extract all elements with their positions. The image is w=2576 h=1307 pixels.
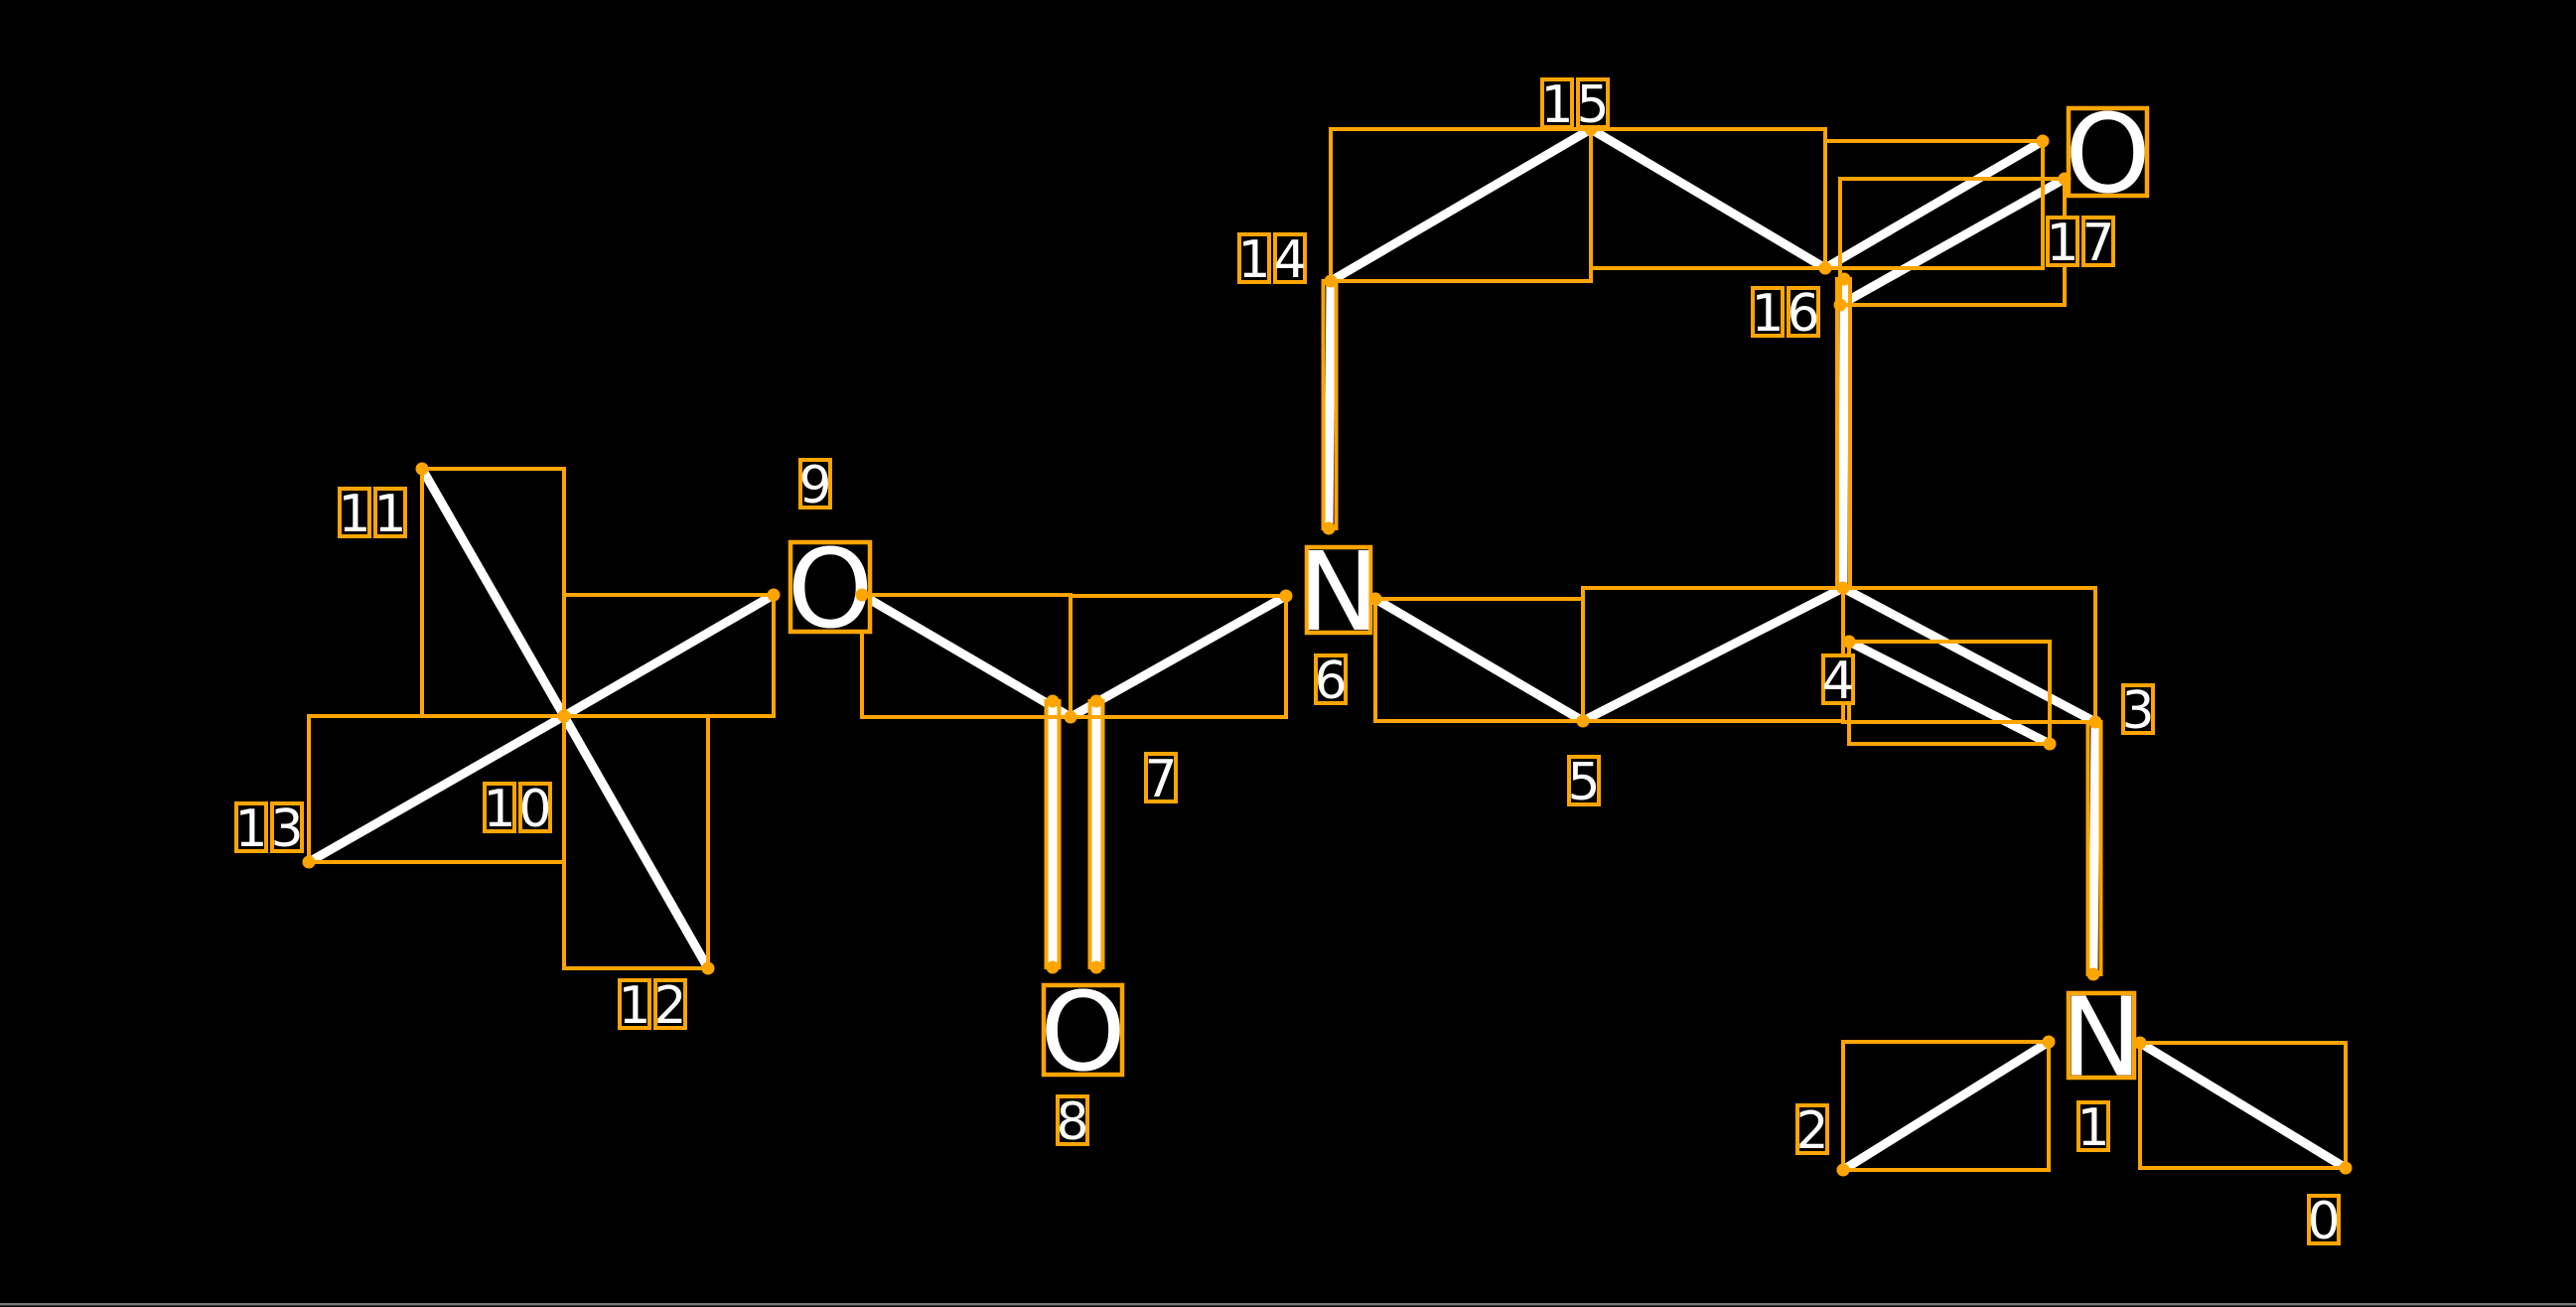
bond-endpoint-marker: [2037, 135, 2050, 148]
bond-endpoint-marker: [1819, 262, 1832, 275]
atom-11-label-digit: 1: [373, 485, 406, 544]
atom-6-label-digit: 6: [1314, 652, 1347, 711]
bond-endpoint-marker: [1090, 961, 1103, 974]
atom-16-label-digit: 6: [1787, 284, 1819, 344]
atom-0-label-digit: 0: [2307, 1192, 2340, 1251]
bond-endpoint-marker: [768, 589, 781, 602]
bond-endpoint-marker: [1369, 593, 1382, 606]
bond-endpoint-marker: [1834, 299, 1847, 312]
molecule-annotation-canvas: NNOOO01234567891011121314151617: [0, 0, 2576, 1307]
atom-14-label-digit: 4: [1273, 230, 1306, 290]
bond-endpoint-marker: [2059, 173, 2072, 186]
bottom-edge-line: [0, 1303, 2576, 1306]
bond-endpoint-marker: [416, 463, 429, 476]
bond-endpoint-marker: [1577, 715, 1590, 728]
atom-12-label-digit: 2: [653, 976, 686, 1036]
atom-1-label-digit: 1: [2076, 1098, 2109, 1158]
atom-16-label-digit: 1: [1751, 284, 1784, 344]
bond-endpoint-marker: [2089, 716, 2102, 729]
atom-10-label-digit: 1: [483, 780, 515, 839]
bond-endpoint-marker: [1090, 695, 1103, 708]
bond-endpoint-marker: [2340, 1162, 2353, 1175]
atom-13-label-digit: 1: [234, 799, 267, 859]
atom-15-label-digit: 5: [1576, 75, 1609, 135]
bond-endpoint-marker: [558, 710, 571, 723]
bond-endpoint-marker: [2044, 738, 2057, 751]
atom-15-label-digit: 1: [1540, 75, 1573, 135]
bond-endpoint-marker: [1843, 636, 1856, 649]
bond-endpoint-marker: [1047, 695, 1060, 708]
bond-6-14-line: [1329, 281, 1331, 528]
atom-12-label-digit: 1: [618, 976, 650, 1036]
bond-16-4-line: [1843, 279, 1844, 588]
atom-3-label-digit: 3: [2121, 681, 2154, 741]
atom-8-symbol: O: [1040, 968, 1126, 1095]
atom-7-label-digit: 7: [1144, 750, 1177, 809]
bond-endpoint-marker: [1837, 582, 1850, 595]
atom-1-symbol: N: [2061, 974, 2142, 1101]
atom-2-label-digit: 2: [1795, 1101, 1828, 1161]
atom-17-label-digit: 1: [2046, 214, 2078, 273]
atom-17-symbol: O: [2065, 90, 2151, 218]
bond-endpoint-marker: [1325, 275, 1338, 288]
bond-endpoint-marker: [303, 856, 316, 869]
bond-endpoint-marker: [1323, 522, 1336, 535]
bond-endpoint-marker: [1065, 711, 1077, 724]
bond-endpoint-marker: [1837, 1164, 1850, 1177]
atom-17-label-digit: 7: [2081, 214, 2114, 273]
atom-8-label-digit: 8: [1056, 1092, 1088, 1152]
bond-endpoint-marker: [1280, 590, 1293, 603]
bond-endpoint-marker: [1838, 273, 1851, 286]
atom-9-label-digit: 9: [798, 456, 831, 515]
bond-endpoint-marker: [1047, 961, 1060, 974]
molecule-diagram: NNOOO01234567891011121314151617: [0, 0, 2576, 1307]
atom-13-label-digit: 3: [270, 799, 303, 859]
atom-6-symbol: N: [1298, 528, 1379, 655]
atom-4-label-digit: 4: [1821, 652, 1854, 711]
bond-endpoint-marker: [2043, 1036, 2056, 1049]
bond-endpoint-marker: [856, 589, 869, 602]
bond-endpoint-marker: [702, 962, 715, 975]
atom-14-label-digit: 1: [1237, 230, 1270, 290]
atom-5-label-digit: 5: [1567, 753, 1600, 812]
atom-11-label-digit: 1: [338, 485, 370, 544]
bond-endpoint-marker: [2087, 968, 2100, 981]
bond-3-1-line: [2093, 722, 2095, 974]
bond-endpoint-marker: [2134, 1037, 2147, 1050]
atom-10-label-digit: 0: [518, 780, 551, 839]
